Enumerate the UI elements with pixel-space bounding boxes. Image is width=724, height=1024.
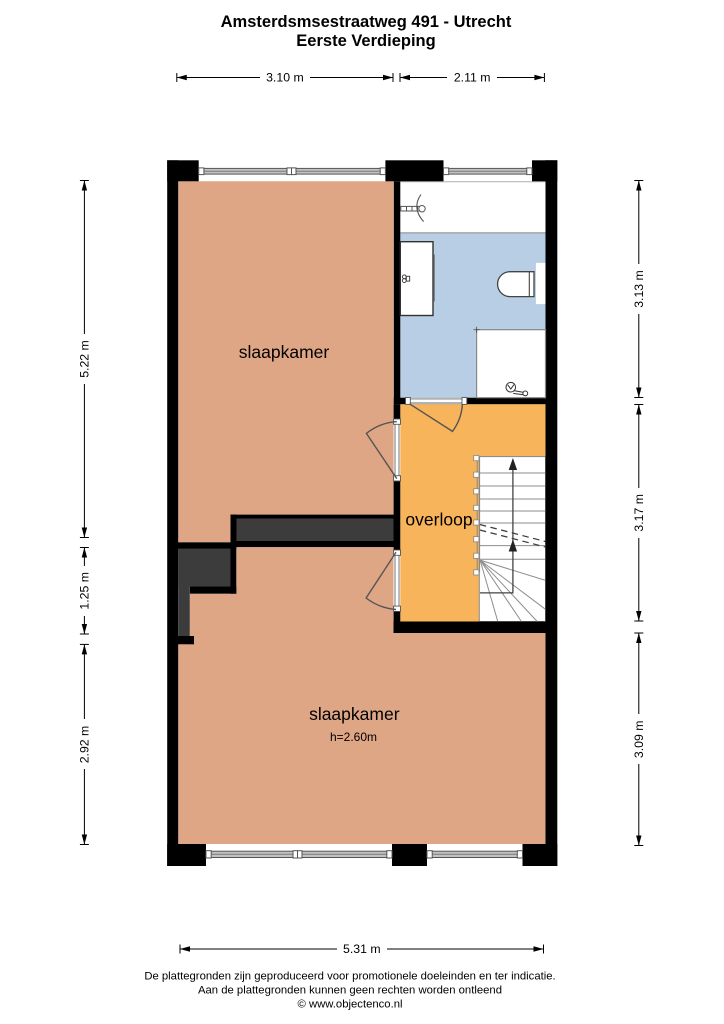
svg-text:Amsterdsmsestraatweg 491 - Utr: Amsterdsmsestraatweg 491 - Utrecht xyxy=(221,13,512,31)
svg-text:5.22 m: 5.22 m xyxy=(77,340,91,378)
svg-text:De plattegronden zijn geproduc: De plattegronden zijn geproduceerd voor … xyxy=(144,971,555,983)
svg-text:overloop: overloop xyxy=(405,510,472,530)
svg-text:1.25 m: 1.25 m xyxy=(77,572,91,610)
svg-text:© www.objectenco.nl: © www.objectenco.nl xyxy=(297,999,402,1011)
svg-text:2.11 m: 2.11 m xyxy=(454,71,491,85)
svg-text:Eerste Verdieping: Eerste Verdieping xyxy=(296,32,435,50)
svg-text:3.13 m: 3.13 m xyxy=(632,270,646,308)
svg-text:Aan de plattegronden kunnen ge: Aan de plattegronden kunnen geen rechten… xyxy=(198,985,502,997)
svg-text:h=2.60m: h=2.60m xyxy=(330,730,377,744)
svg-text:5.31 m: 5.31 m xyxy=(343,942,381,956)
svg-text:3.17 m: 3.17 m xyxy=(632,494,646,532)
svg-text:3.10 m: 3.10 m xyxy=(266,71,304,85)
svg-text:3.09 m: 3.09 m xyxy=(632,721,646,759)
svg-text:slaapkamer: slaapkamer xyxy=(309,704,400,724)
svg-text:slaapkamer: slaapkamer xyxy=(239,342,330,362)
svg-text:2.92 m: 2.92 m xyxy=(77,726,91,764)
